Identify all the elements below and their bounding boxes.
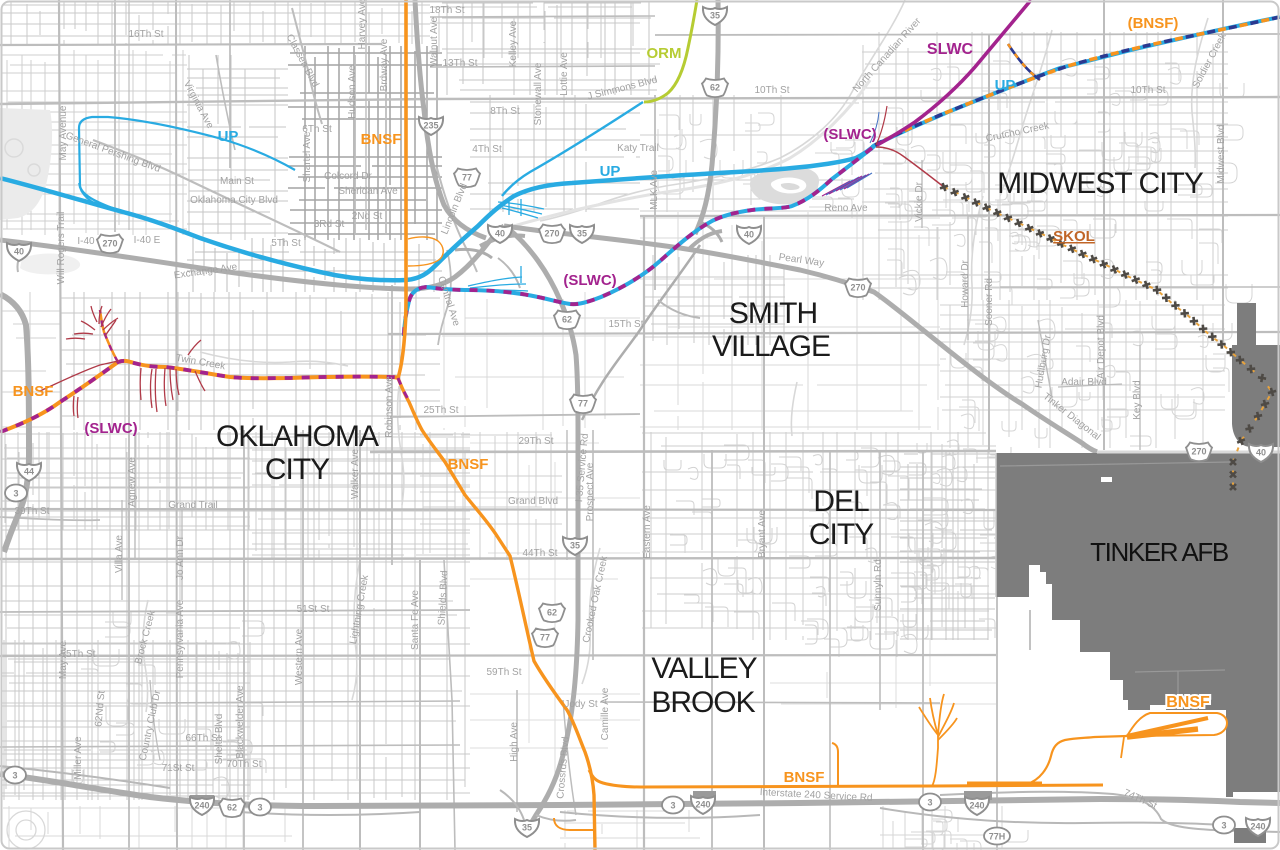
svg-text:10Th St: 10Th St	[1130, 85, 1165, 96]
svg-text:3Rd St: 3Rd St	[314, 219, 345, 230]
svg-text:May Ave: May Ave	[58, 640, 69, 679]
svg-text:77: 77	[462, 173, 472, 183]
svg-text:3: 3	[12, 771, 17, 781]
svg-text:40: 40	[1256, 448, 1266, 458]
svg-text:29Th St: 29Th St	[518, 436, 553, 447]
svg-text:I-40 E: I-40 E	[134, 235, 161, 246]
svg-text:Grand Trail: Grand Trail	[168, 500, 217, 511]
svg-text:13Th St: 13Th St	[442, 58, 477, 69]
svg-text:235: 235	[423, 121, 438, 131]
svg-text:(SLWC): (SLWC)	[563, 272, 616, 289]
svg-text:Eastern Ave: Eastern Ave	[642, 505, 653, 559]
svg-text:270: 270	[544, 229, 559, 239]
svg-text:MLK Ave: MLK Ave	[649, 170, 660, 210]
svg-text:Walnut Ave: Walnut Ave	[429, 17, 440, 67]
svg-text:UP: UP	[600, 163, 621, 180]
svg-text:270: 270	[850, 283, 865, 293]
svg-text:240: 240	[695, 800, 710, 810]
svg-text:3: 3	[13, 489, 18, 499]
svg-text:62: 62	[562, 315, 572, 325]
svg-text:CITY: CITY	[809, 518, 874, 551]
svg-text:77H: 77H	[989, 832, 1006, 842]
svg-text:Grand Blvd: Grand Blvd	[508, 496, 558, 507]
svg-text:Camille Ave: Camille Ave	[600, 687, 611, 740]
svg-text:BROOK: BROOK	[651, 686, 755, 719]
svg-text:Main St: Main St	[220, 176, 254, 187]
svg-text:35: 35	[570, 541, 580, 551]
svg-text:3: 3	[257, 803, 262, 813]
svg-text:Kelley Ave: Kelley Ave	[508, 20, 519, 67]
svg-text:5Th St: 5Th St	[271, 238, 301, 249]
svg-text:59Th St: 59Th St	[486, 667, 521, 678]
svg-text:Western Ave: Western Ave	[294, 628, 305, 685]
svg-text:Howard Dr: Howard Dr	[960, 259, 971, 307]
svg-text:16Th St: 16Th St	[128, 29, 163, 40]
svg-text:Villa Ave: Villa Ave	[114, 535, 125, 573]
svg-text:40: 40	[495, 229, 505, 239]
svg-text:77: 77	[578, 399, 588, 409]
svg-text:240: 240	[194, 801, 209, 811]
svg-text:10Th St: 10Th St	[754, 85, 789, 96]
svg-text:35: 35	[522, 823, 532, 833]
svg-text:UP: UP	[218, 128, 239, 145]
svg-text:Miller Ave: Miller Ave	[73, 736, 84, 780]
svg-text:OKLAHOMA: OKLAHOMA	[216, 420, 379, 453]
svg-text:Hudson Ave: Hudson Ave	[347, 65, 358, 119]
svg-text:71St St: 71St St	[162, 763, 195, 774]
svg-text:Agnew Ave: Agnew Ave	[127, 457, 138, 507]
svg-text:Santa Fe Ave: Santa Fe Ave	[410, 590, 421, 650]
svg-text:SMITH: SMITH	[729, 297, 817, 330]
svg-text:BNSF: BNSF	[784, 769, 825, 786]
svg-text:62: 62	[547, 608, 557, 618]
svg-text:Stonewall Ave: Stonewall Ave	[533, 62, 544, 125]
svg-text:Blackwelder Ave: Blackwelder Ave	[235, 685, 246, 759]
svg-text:SKOL: SKOL	[1053, 228, 1095, 245]
svg-text:Midwest Blvd: Midwest Blvd	[1216, 125, 1227, 184]
svg-text:Pennsylvania Ave: Pennsylvania Ave	[175, 599, 186, 678]
svg-text:270: 270	[1191, 447, 1206, 457]
svg-text:35: 35	[710, 11, 720, 21]
svg-text:Lottie Ave: Lottie Ave	[559, 52, 570, 96]
svg-text:Harvey Ave: Harvey Ave	[357, 0, 368, 49]
svg-text:High Ave: High Ave	[509, 722, 520, 762]
svg-text:MIDWEST CITY: MIDWEST CITY	[997, 167, 1204, 200]
svg-text:18Th St: 18Th St	[429, 5, 464, 16]
svg-text:Robinson Ave: Robinson Ave	[384, 376, 395, 438]
svg-text:240: 240	[1250, 822, 1265, 832]
svg-text:BNSF: BNSF	[13, 383, 54, 400]
svg-text:Jody St: Jody St	[564, 699, 598, 710]
svg-text:3: 3	[927, 798, 932, 808]
svg-text:Key Blvd: Key Blvd	[1132, 380, 1143, 419]
svg-text:(BNSF): (BNSF)	[1128, 15, 1179, 32]
svg-text:40: 40	[14, 247, 24, 257]
svg-text:BNSF: BNSF	[1166, 694, 1210, 711]
svg-text:15Th St: 15Th St	[608, 319, 643, 330]
svg-text:Air Depot Blvd: Air Depot Blvd	[1096, 315, 1107, 379]
svg-text:44Th St: 44Th St	[522, 548, 557, 559]
svg-text:Katy Trail: Katy Trail	[617, 143, 659, 154]
svg-text:BNSF: BNSF	[448, 456, 489, 473]
svg-text:DEL: DEL	[813, 485, 869, 518]
svg-text:44: 44	[24, 467, 34, 477]
svg-text:Vickie Dr: Vickie Dr	[914, 181, 925, 221]
svg-text:2Nd St: 2Nd St	[352, 211, 383, 222]
svg-text:Reno Ave: Reno Ave	[824, 203, 868, 214]
svg-text:BNSF: BNSF	[361, 131, 402, 148]
svg-text:62: 62	[710, 83, 720, 93]
svg-text:70Th St: 70Th St	[226, 759, 261, 770]
svg-text:Prospect Ave: Prospect Ave	[585, 462, 596, 521]
svg-text:3: 3	[1221, 821, 1226, 831]
svg-text:25Th St: 25Th St	[423, 405, 458, 416]
svg-text:Jo Ann Dr: Jo Ann Dr	[175, 535, 186, 580]
svg-text:VALLEY: VALLEY	[651, 652, 757, 685]
svg-text:3: 3	[670, 801, 675, 811]
svg-text:Sunnyln Rd: Sunnyln Rd	[873, 559, 884, 611]
svg-text:TINKER AFB: TINKER AFB	[1090, 537, 1228, 567]
svg-text:4Th St: 4Th St	[472, 144, 502, 155]
svg-text:40: 40	[744, 230, 754, 240]
svg-text:8Th St: 8Th St	[490, 106, 520, 117]
svg-text:Will Rogers Trail: Will Rogers Trail	[56, 212, 67, 285]
svg-text:39Th St: 39Th St	[14, 506, 49, 517]
svg-text:Shelta Blvd: Shelta Blvd	[214, 714, 225, 765]
svg-text:35: 35	[577, 229, 587, 239]
svg-text:Bryant Ave: Bryant Ave	[757, 509, 768, 558]
svg-text:UP: UP	[995, 77, 1016, 94]
svg-text:Walker Ave: Walker Ave	[350, 449, 361, 499]
svg-text:CITY: CITY	[265, 453, 330, 486]
svg-text:51St St: 51St St	[297, 604, 330, 615]
svg-text:62: 62	[227, 803, 237, 813]
svg-text:240: 240	[969, 801, 984, 811]
svg-text:(SLWC): (SLWC)	[823, 126, 876, 143]
svg-text:I-40: I-40	[77, 236, 95, 247]
svg-text:Brdway Ave: Brdway Ave	[379, 38, 390, 91]
svg-text:Sheridan Ave: Sheridan Ave	[338, 186, 398, 197]
svg-text:ORM: ORM	[647, 45, 682, 62]
svg-text:VILLAGE: VILLAGE	[712, 330, 830, 363]
svg-text:SLWC: SLWC	[927, 41, 974, 58]
svg-text:Shartel Ave: Shartel Ave	[302, 131, 313, 182]
svg-text:Sooner Rd: Sooner Rd	[984, 278, 995, 326]
svg-text:(SLWC): (SLWC)	[84, 420, 137, 437]
svg-text:77: 77	[540, 633, 550, 643]
svg-text:Oklahoma City Blvd: Oklahoma City Blvd	[190, 195, 278, 206]
svg-text:Colcord Dr: Colcord Dr	[324, 171, 372, 182]
svg-text:270: 270	[102, 239, 117, 249]
